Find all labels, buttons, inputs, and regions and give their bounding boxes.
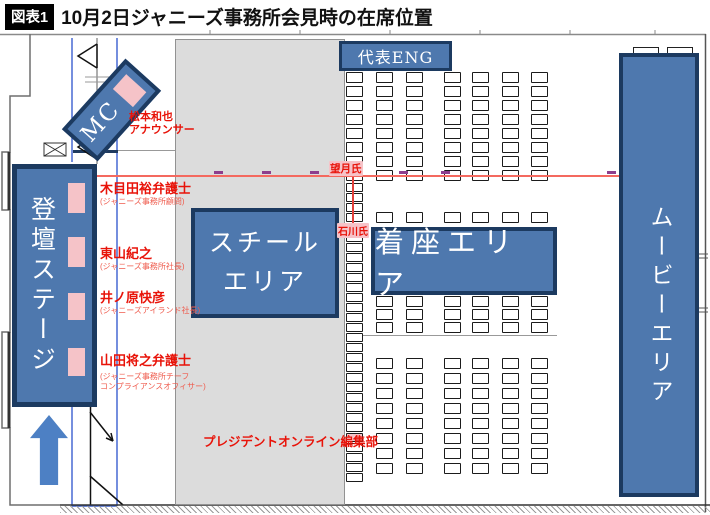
seat: [346, 343, 363, 352]
seat: [531, 86, 548, 97]
seat: [472, 128, 489, 139]
label-kimeda: 木目田裕弁護士 (ジャニーズ事務所顧問): [100, 181, 191, 207]
seat: [444, 463, 461, 474]
seat: [472, 100, 489, 111]
mc-seat: [113, 74, 146, 107]
seat: [502, 114, 519, 125]
seat: [472, 403, 489, 414]
seat: [376, 128, 393, 139]
seat: [531, 448, 548, 459]
seat: [406, 418, 423, 429]
seat: [346, 128, 363, 139]
seat: [346, 243, 363, 252]
line-dash-mark: [310, 171, 319, 174]
seat: [502, 309, 519, 320]
seat: [376, 322, 393, 333]
seat: [502, 72, 519, 83]
seat: [346, 263, 363, 272]
seat: [531, 403, 548, 414]
person-name: 木目田裕弁護士: [100, 181, 191, 197]
seat: [531, 322, 548, 333]
line-dash-mark: [262, 171, 271, 174]
seat: [346, 203, 363, 212]
ishikawa-pointer-line: [352, 177, 354, 225]
seat: [346, 283, 363, 292]
seat: [406, 114, 423, 125]
seat: [346, 363, 363, 372]
eng-camera-area-box: 代表ENG: [339, 41, 452, 71]
label-matsumoto: 松本和也 アナウンサー: [129, 111, 195, 137]
seat: [376, 358, 393, 369]
seat: [531, 72, 548, 83]
seat: [376, 448, 393, 459]
person-name: 東山紀之: [100, 246, 185, 262]
seat: [406, 142, 423, 153]
seat: [346, 303, 363, 312]
figure-title: 図表1 10月2日ジャニーズ事務所会見時の在席位置: [5, 3, 433, 30]
line-dash-mark: [441, 171, 450, 174]
seat: [502, 448, 519, 459]
person-name: 井ノ原快彦: [100, 290, 200, 306]
seat: [376, 433, 393, 444]
seat: [346, 313, 363, 322]
seat: [376, 142, 393, 153]
figure-number-badge: 図表1: [5, 4, 54, 30]
seat: [444, 114, 461, 125]
seat: [531, 114, 548, 125]
seat: [531, 309, 548, 320]
seat: [531, 128, 548, 139]
seat: [444, 322, 461, 333]
seat: [444, 72, 461, 83]
marker-ishikawa: 石川氏: [337, 223, 369, 238]
seat: [406, 128, 423, 139]
seat: [472, 418, 489, 429]
movie-area-box: ムービーエリア: [619, 53, 699, 497]
seat: [444, 309, 461, 320]
seated-area-label: 着座エリア: [375, 219, 553, 303]
seat: [444, 388, 461, 399]
seat: [346, 183, 363, 192]
seat: [502, 86, 519, 97]
seat: [346, 273, 363, 282]
seat: [444, 142, 461, 153]
label-yamada: 山田将之弁護士 (ジャニーズ事務所チーフコンプライアンスオフィサー): [100, 353, 206, 392]
marker-president-online: プレジデントオンライン編集部: [203, 431, 378, 450]
seat: [472, 142, 489, 153]
seat: [472, 86, 489, 97]
seat: [472, 433, 489, 444]
seat: [502, 433, 519, 444]
seat: [444, 448, 461, 459]
seat: [531, 433, 548, 444]
seat: [502, 388, 519, 399]
seat: [472, 114, 489, 125]
seat: [502, 156, 519, 167]
person-role: (ジャニーズ事務所チーフコンプライアンスオフィサー): [100, 372, 206, 392]
seat: [406, 373, 423, 384]
seat: [472, 373, 489, 384]
seat: [444, 433, 461, 444]
seat: [444, 128, 461, 139]
seat: [346, 193, 363, 202]
seat: [376, 373, 393, 384]
seat: [472, 358, 489, 369]
seat: [406, 156, 423, 167]
seat: [531, 418, 548, 429]
person-role: (ジャニーズアイランド社長): [100, 306, 200, 316]
stage-speaker-seat: [68, 348, 85, 376]
person-role: アナウンサー: [129, 124, 195, 137]
seat: [406, 358, 423, 369]
seat: [502, 373, 519, 384]
seat: [346, 453, 363, 462]
seat: [444, 86, 461, 97]
eng-camera-area-label: 代表ENG: [358, 44, 433, 68]
seat: [346, 86, 363, 97]
seat: [472, 463, 489, 474]
seat: [346, 463, 363, 472]
seat: [346, 142, 363, 153]
seat: [376, 156, 393, 167]
seat: [406, 309, 423, 320]
seat: [376, 388, 393, 399]
seat: [406, 463, 423, 474]
seat: [444, 418, 461, 429]
still-photo-area-label: スチールエリア: [209, 224, 321, 302]
seat: [346, 253, 363, 262]
seat: [531, 388, 548, 399]
seat: [346, 353, 363, 362]
seat: [531, 463, 548, 474]
seat: [346, 403, 363, 412]
seat: [502, 403, 519, 414]
seat: [502, 358, 519, 369]
seat: [472, 156, 489, 167]
seat: [444, 373, 461, 384]
person-name: 山田将之弁護士: [100, 353, 206, 369]
seat: [406, 403, 423, 414]
stage-area-label: 登壇ステージ: [24, 196, 60, 376]
seat: [346, 323, 363, 332]
seat: [346, 473, 363, 482]
seat: [346, 383, 363, 392]
seat: [346, 293, 363, 302]
person-role: (ジャニーズ事務所顧問): [100, 197, 191, 207]
movie-area-label: ムービーエリア: [642, 205, 676, 408]
stage-speaker-seat: [68, 237, 85, 267]
seat: [346, 72, 363, 83]
seat: [472, 322, 489, 333]
seat: [406, 86, 423, 97]
seat: [376, 86, 393, 97]
seat: [406, 322, 423, 333]
seat: [502, 463, 519, 474]
seat: [346, 393, 363, 402]
floor-plan-figure: 登壇ステージ MC スチールエリア 代表ENG 着座エリア ムービーエリア 松本…: [0, 0, 710, 515]
seat: [406, 100, 423, 111]
seat: [531, 373, 548, 384]
seat: [472, 388, 489, 399]
seat: [376, 72, 393, 83]
line-dash-mark: [399, 171, 408, 174]
marker-mochizuki: 望月氏: [329, 161, 363, 176]
still-photo-area-box: スチールエリア: [191, 208, 339, 318]
seat: [472, 72, 489, 83]
seat: [376, 463, 393, 474]
seated-area-box: 着座エリア: [371, 227, 557, 295]
stage-area-box: 登壇ステージ: [12, 164, 97, 407]
seat: [376, 309, 393, 320]
stage-speaker-seat: [68, 293, 85, 320]
seat: [502, 322, 519, 333]
seat: [502, 100, 519, 111]
seat: [502, 418, 519, 429]
seat: [531, 100, 548, 111]
line-dash-mark: [607, 171, 616, 174]
seat: [346, 114, 363, 125]
seat: [531, 358, 548, 369]
person-name: 松本和也: [129, 111, 195, 124]
seat: [502, 128, 519, 139]
seat: [376, 418, 393, 429]
seat: [376, 403, 393, 414]
seat: [472, 309, 489, 320]
seat: [531, 142, 548, 153]
seat: [406, 72, 423, 83]
seat: [406, 433, 423, 444]
seat: [346, 333, 363, 342]
seat: [346, 100, 363, 111]
seat: [531, 156, 548, 167]
figure-title-text: 10月2日ジャニーズ事務所会見時の在席位置: [61, 3, 433, 30]
seat: [472, 448, 489, 459]
seat: [376, 100, 393, 111]
seat: [444, 403, 461, 414]
label-higashiyama: 東山紀之 (ジャニーズ事務所社長): [100, 246, 185, 272]
label-inohara: 井ノ原快彦 (ジャニーズアイランド社長): [100, 290, 200, 316]
seat: [346, 213, 363, 222]
seat: [444, 358, 461, 369]
seat: [376, 114, 393, 125]
seat: [346, 413, 363, 422]
stage-speaker-seat: [68, 183, 85, 213]
person-role: (ジャニーズ事務所社長): [100, 262, 185, 272]
seat: [406, 388, 423, 399]
seat: [502, 142, 519, 153]
line-dash-mark: [214, 171, 223, 174]
seat: [346, 373, 363, 382]
seat: [444, 156, 461, 167]
seat: [444, 100, 461, 111]
seat: [406, 448, 423, 459]
